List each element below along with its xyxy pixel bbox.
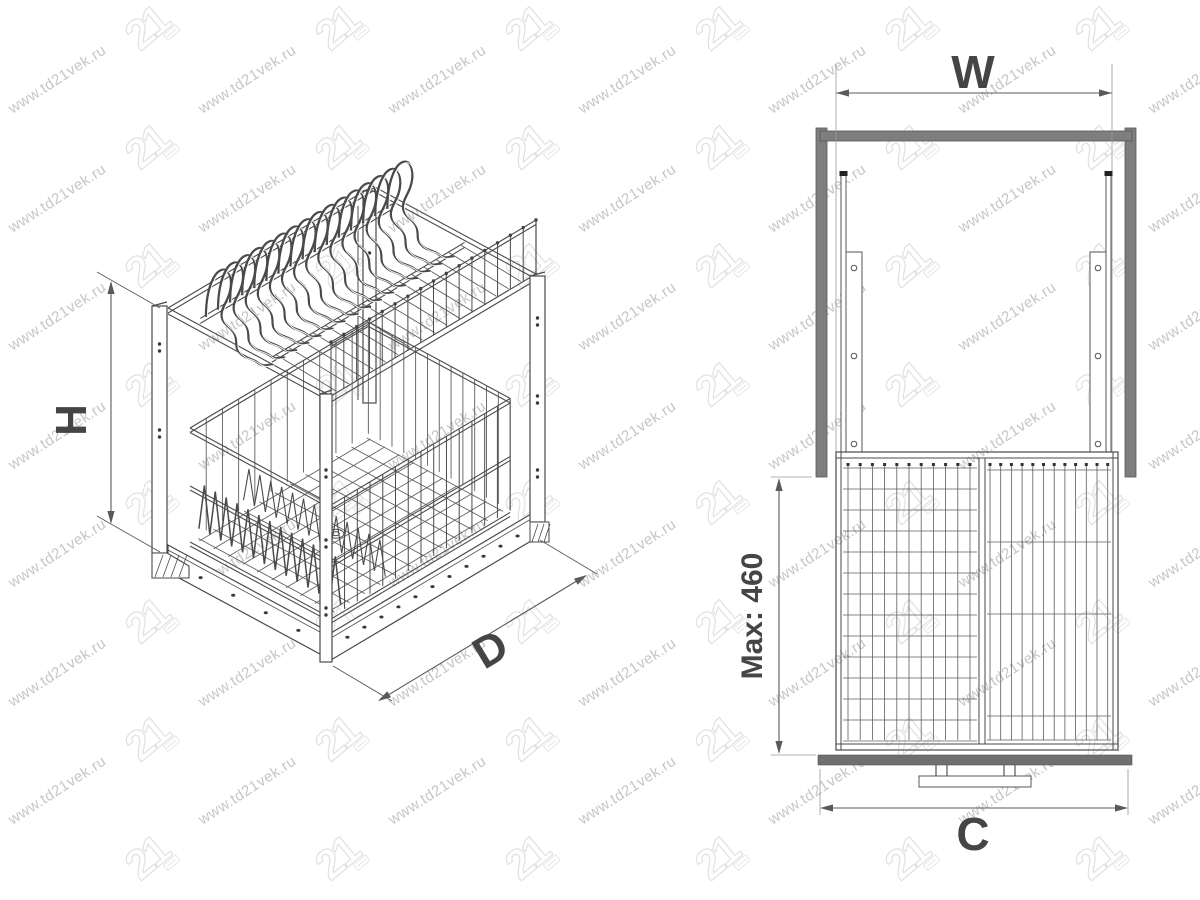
dimension-arrow	[1115, 804, 1128, 811]
hole	[158, 428, 161, 431]
wire-cap	[1042, 463, 1045, 466]
hole	[851, 441, 857, 447]
rail-cap	[840, 171, 848, 176]
wire	[374, 296, 434, 333]
dimension-label-depth: D	[464, 620, 516, 678]
hole	[324, 606, 327, 609]
wire	[321, 465, 457, 538]
wire-cap	[920, 463, 923, 466]
mount-hole	[447, 575, 451, 578]
wire	[315, 502, 486, 604]
isometric-view	[97, 162, 597, 704]
rail-rod	[1106, 175, 1111, 452]
mount-hole	[515, 534, 519, 537]
wire-cap	[1053, 463, 1056, 466]
wire	[461, 245, 521, 282]
extension-line	[97, 272, 160, 308]
hole	[324, 468, 327, 471]
wire-cap	[1074, 463, 1077, 466]
wire	[436, 260, 496, 297]
mount-hole	[379, 615, 383, 618]
dimension-arrow	[775, 741, 782, 754]
wire-cap	[1096, 463, 1099, 466]
hole	[536, 394, 539, 397]
drawing-canvas: H D W C Max: 460	[0, 0, 1200, 900]
mount-hole	[362, 626, 366, 629]
hole	[536, 316, 539, 319]
mount-hole	[199, 576, 203, 579]
hole	[1095, 353, 1101, 359]
hole	[536, 401, 539, 404]
rim	[190, 428, 332, 505]
dimension-label-max-drop: Max: 460	[736, 553, 769, 680]
basket-front	[836, 452, 1118, 750]
hole	[851, 265, 857, 271]
rail-cap	[1105, 171, 1113, 176]
rail-left	[840, 171, 863, 452]
wire-cap	[1085, 463, 1088, 466]
wire	[257, 470, 428, 572]
dimension-label-cabinet-width: C	[956, 808, 989, 860]
hole	[158, 349, 161, 352]
wire-cap	[847, 463, 850, 466]
wire-cap	[1063, 463, 1066, 466]
wire	[336, 456, 472, 529]
wire-cap	[989, 463, 992, 466]
wire-cap	[944, 463, 947, 466]
mount-hole	[296, 629, 300, 632]
wire	[244, 511, 380, 584]
hole	[324, 475, 327, 478]
hole	[536, 475, 539, 478]
hole	[324, 613, 327, 616]
hole	[158, 435, 161, 438]
dimension-arrow	[820, 804, 833, 811]
dimension-arrow	[1099, 89, 1112, 96]
hole	[536, 323, 539, 326]
wire-cap	[956, 463, 959, 466]
dimension-arrow	[574, 572, 589, 585]
cabinet-top-bar	[820, 131, 1132, 141]
wire-cap	[883, 463, 886, 466]
right-post	[530, 272, 550, 542]
wire	[387, 289, 447, 326]
dimension-arrow	[107, 281, 114, 294]
mount-hole	[430, 585, 434, 588]
front-post-bar	[320, 394, 332, 662]
extension-line	[97, 516, 160, 552]
cabinet-wall-left	[816, 128, 827, 477]
cabinet-base	[818, 755, 1132, 787]
dimension-width	[836, 64, 1112, 452]
cabinet-wall-right	[1125, 128, 1136, 477]
cabinet	[816, 128, 1136, 477]
wire-cap	[1031, 463, 1034, 466]
mount-hole	[498, 545, 502, 548]
hole	[851, 353, 857, 359]
wire	[275, 493, 411, 566]
mount-hole	[413, 595, 417, 598]
mount-hole	[464, 565, 468, 568]
dimension-label-height: H	[47, 404, 96, 436]
wire	[152, 302, 167, 306]
rail-right	[1090, 171, 1113, 452]
mount-hole	[345, 636, 349, 639]
wire-cap	[1021, 463, 1024, 466]
dimension-arrow	[775, 478, 782, 491]
rail-plate	[1090, 252, 1106, 452]
wire-cap	[871, 463, 874, 466]
dimension-arrow	[836, 89, 849, 96]
right-post-bar	[530, 276, 545, 522]
mount-hole	[264, 611, 268, 614]
dimension-label-width: W	[951, 46, 995, 98]
wire-cap	[932, 463, 935, 466]
wire-cap	[1010, 463, 1013, 466]
pedestal-foot	[919, 776, 1031, 787]
hole	[324, 545, 327, 548]
wire-cap	[908, 463, 911, 466]
mount-hole	[396, 605, 400, 608]
front-view	[771, 64, 1136, 815]
mount-hole	[231, 594, 235, 597]
wire	[352, 447, 488, 520]
floor-bar	[818, 755, 1132, 765]
wire-cap	[999, 463, 1002, 466]
wire	[276, 355, 336, 392]
wire	[290, 484, 426, 557]
wire-cap	[969, 463, 972, 466]
extension-line	[540, 540, 597, 574]
wire	[168, 550, 331, 638]
dimension-max-drop	[771, 477, 816, 755]
hole	[1095, 265, 1101, 271]
wire-cap	[1106, 463, 1109, 466]
wire-cap	[895, 463, 898, 466]
left-post	[152, 302, 189, 578]
wire	[448, 252, 508, 289]
wire	[367, 438, 503, 511]
rail-rod	[841, 175, 846, 452]
hole	[324, 538, 327, 541]
front-post	[320, 390, 332, 662]
rim	[190, 322, 368, 428]
wire	[424, 267, 484, 304]
dimension-height	[97, 272, 160, 552]
mount-hole	[481, 555, 485, 558]
hole	[536, 468, 539, 471]
hole	[158, 342, 161, 345]
rail-plate	[846, 252, 862, 452]
technical-drawing-page: { "labels": { "height": "H", "depth": "D…	[0, 0, 1200, 900]
wire-cap	[859, 463, 862, 466]
hole	[1095, 441, 1101, 447]
